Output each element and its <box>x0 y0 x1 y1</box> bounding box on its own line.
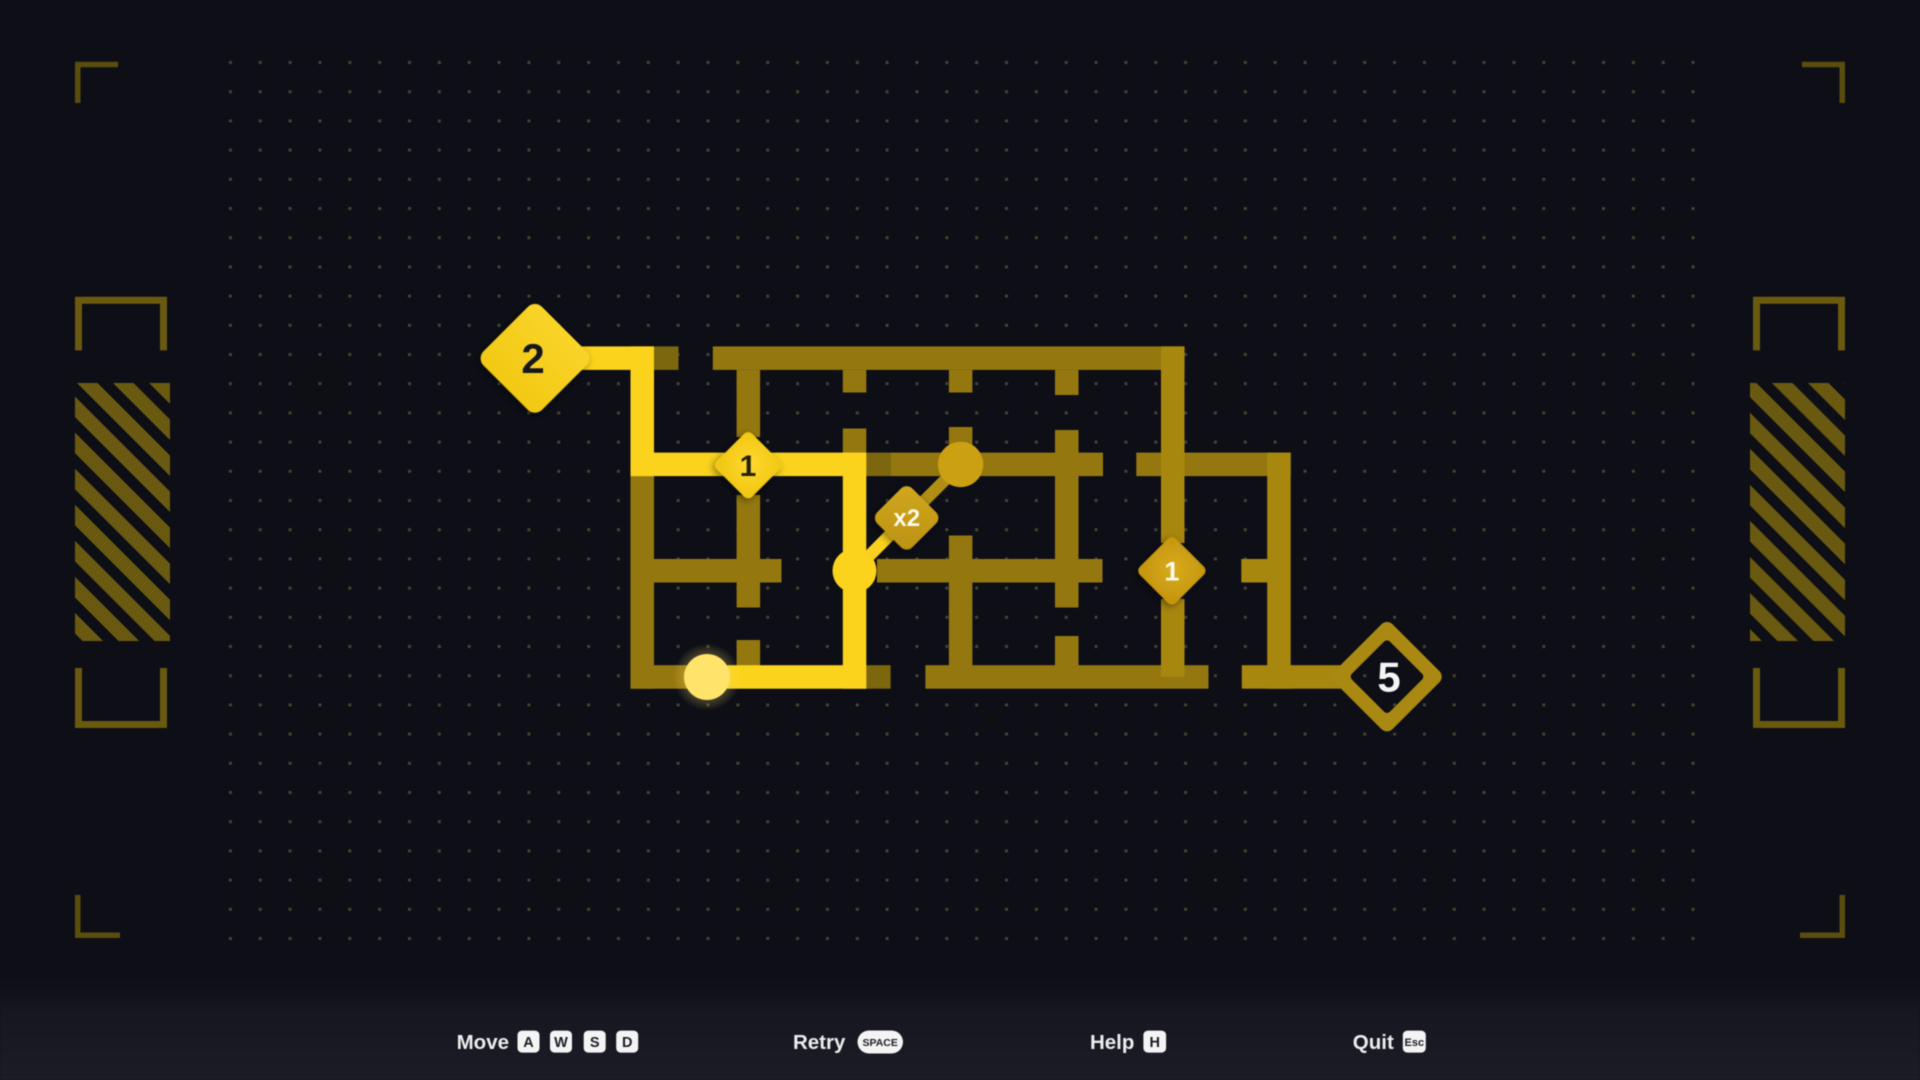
svg-text:Retry: Retry <box>793 1031 846 1054</box>
svg-text:Move: Move <box>457 1031 509 1054</box>
svg-text:Quit: Quit <box>1353 1031 1394 1054</box>
svg-text:x2: x2 <box>893 505 920 532</box>
svg-text:S: S <box>590 1035 600 1051</box>
svg-text:Esc: Esc <box>1405 1037 1425 1049</box>
svg-text:Help: Help <box>1090 1031 1134 1054</box>
svg-text:2: 2 <box>521 335 544 382</box>
svg-text:SPACE: SPACE <box>862 1037 897 1049</box>
svg-text:D: D <box>622 1035 632 1051</box>
svg-text:H: H <box>1150 1035 1160 1051</box>
svg-text:5: 5 <box>1377 654 1400 701</box>
svg-text:A: A <box>523 1035 534 1051</box>
svg-text:W: W <box>554 1035 568 1051</box>
svg-text:1: 1 <box>1164 557 1179 587</box>
svg-text:1: 1 <box>740 450 757 483</box>
